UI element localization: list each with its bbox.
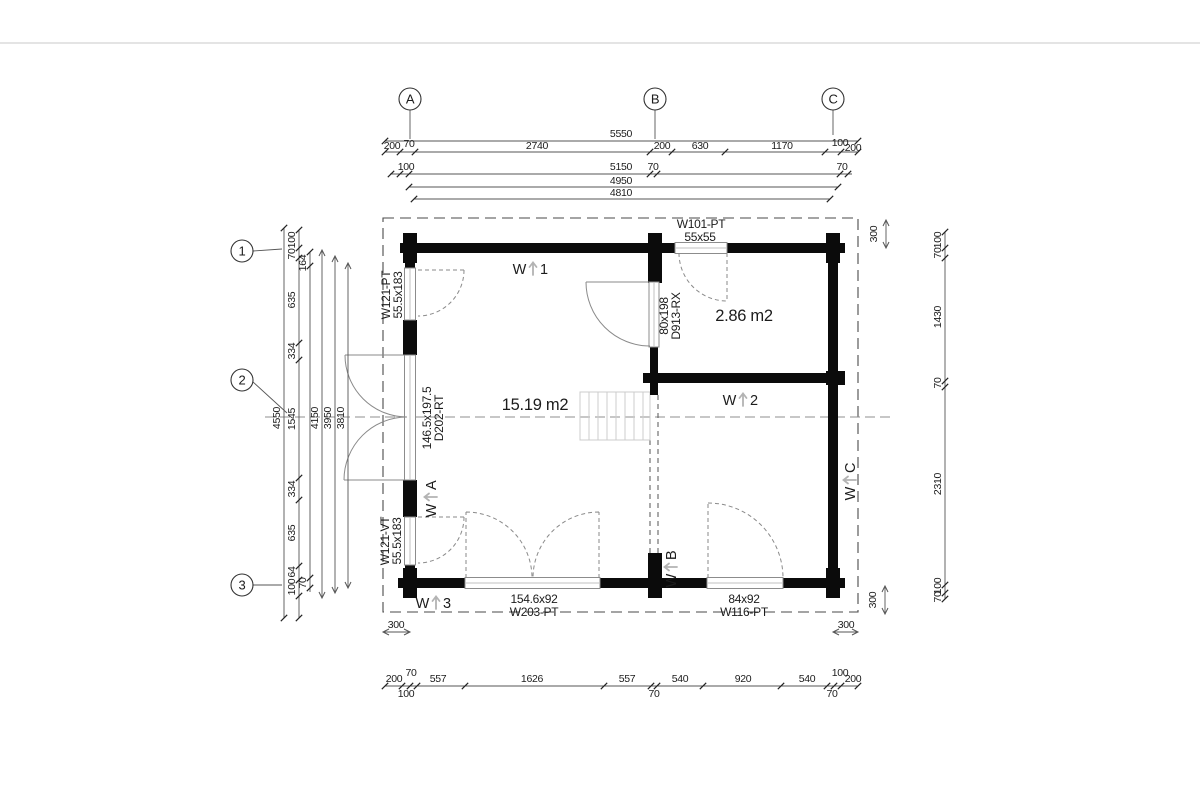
- roof-overhang-outline: [383, 218, 858, 612]
- dim-label: 100: [398, 161, 415, 173]
- dim-label: 1430: [932, 305, 944, 328]
- wall-mark-wb: WB: [664, 551, 680, 588]
- window-w121vt-size: 55.5x183: [390, 517, 404, 565]
- dim-label: 200: [386, 673, 403, 685]
- window-w203-size: 154.6x92: [511, 592, 559, 606]
- window-w121vt-swing: [418, 517, 464, 563]
- wall-mark-wc-id: C: [843, 463, 859, 473]
- wall-mark-w1-id: 1: [540, 262, 548, 278]
- wall-mark-w3: W3: [416, 596, 451, 612]
- dim-label: 100: [398, 688, 415, 700]
- window-w116-label: W116-PT: [720, 605, 769, 619]
- dim-label: 70: [932, 591, 944, 603]
- wall-mark-wc-arrow-icon: [844, 477, 857, 484]
- window-w101-label: W101-PT: [677, 217, 727, 231]
- grid-col-b-label: B: [651, 92, 659, 107]
- grid-row-3-label: 3: [239, 578, 246, 593]
- wall-left-seg: [403, 480, 417, 517]
- wall-top: [400, 243, 845, 253]
- door-d913-label: D913-RX: [669, 292, 683, 340]
- window-w101-swing: [679, 253, 727, 301]
- dim-label: 334: [286, 342, 298, 359]
- floor-plan-drawing: 5550200702740200630117010020010051507070…: [0, 0, 1200, 800]
- dim-label: 100: [932, 231, 944, 248]
- wall-left-seg: [403, 320, 417, 355]
- dim-label: 4550: [271, 406, 283, 429]
- dim-label: 300: [838, 619, 855, 631]
- room-area-small: 2.86 m2: [715, 307, 773, 325]
- window-w121pt-swing: [418, 270, 464, 316]
- dim-label: 70: [405, 667, 417, 679]
- window-w116-size: 84x92: [728, 592, 760, 606]
- wall-mark-w1-letter: W: [513, 262, 527, 278]
- dim-label: 100: [286, 231, 298, 248]
- wall-mark-wb-id: B: [664, 551, 680, 560]
- door-d913-swing: [586, 282, 650, 346]
- wall-mark-w1-arrow-icon: [530, 263, 537, 276]
- dim-label: 1626: [521, 673, 544, 685]
- dim-label: 1545: [286, 407, 298, 430]
- wall-right: [828, 243, 838, 588]
- wall-interior-v: [650, 347, 658, 395]
- openings: [405, 243, 784, 589]
- grid-row-2-label: 2: [239, 373, 246, 388]
- dim-label: 557: [619, 673, 636, 685]
- wall-mark-wb-letter: W: [664, 573, 680, 587]
- dim-label: 2740: [526, 140, 549, 152]
- log-cross: [826, 233, 840, 263]
- wall-mark-w2: W2: [723, 393, 758, 409]
- window-w121pt-size: 55.5x183: [391, 271, 405, 319]
- wall-mark-w2-arrow-icon: [740, 394, 747, 407]
- dim-label: 2310: [932, 472, 944, 495]
- window-w116-swing: [708, 503, 783, 578]
- wall-mark-w3-id: 3: [443, 596, 451, 612]
- staircase: [580, 392, 650, 440]
- dim-label: 200: [654, 140, 671, 152]
- window-w203-swing-right: [533, 512, 599, 578]
- wall-mark-w3-arrow-icon: [433, 597, 440, 610]
- window-w101-size: 55x55: [684, 230, 716, 244]
- dim-label: 4810: [610, 187, 633, 199]
- dim-label: 540: [672, 673, 689, 685]
- hidden-wall-dashed: [650, 395, 658, 578]
- wall-interior-h: [643, 373, 840, 383]
- door-d202-swing-bottom: [344, 417, 407, 480]
- dim-label: 70: [826, 688, 838, 700]
- dim-label: 635: [286, 291, 298, 308]
- grid-bubble-layer: ABC123: [231, 88, 844, 596]
- log-cross: [648, 553, 662, 598]
- dim-label: 300: [867, 591, 879, 608]
- dim-label: 5550: [610, 128, 633, 140]
- walls: [398, 233, 845, 598]
- wall-mark-w2-letter: W: [723, 393, 737, 409]
- wall-mark-wa-letter: W: [424, 503, 440, 517]
- dim-label: 3950: [322, 406, 334, 429]
- dim-label: 920: [735, 673, 752, 685]
- window-w203-label: W203-PT: [510, 605, 560, 619]
- door-d202-label: D202-RT: [432, 394, 446, 441]
- door-d202-swing-top: [345, 355, 407, 417]
- dim-label: 70: [648, 688, 660, 700]
- dim-label: 300: [868, 225, 880, 242]
- wall-mark-wb-arrow-icon: [665, 564, 678, 571]
- dim-label: 334: [286, 480, 298, 497]
- grid-row-2-leader: [253, 382, 287, 413]
- dim-label: 70: [403, 138, 415, 150]
- window-w203-swing-left: [466, 512, 532, 578]
- dim-label: 70: [932, 247, 944, 259]
- grid-col-c-label: C: [828, 92, 837, 107]
- wall-mark-wa-id: A: [424, 480, 440, 490]
- dim-label: 200: [845, 673, 862, 685]
- log-cross: [826, 568, 840, 598]
- text-label-layer: 15.19 m22.86 m2W101-PT55x55W121-PT55.5x1…: [378, 217, 859, 619]
- grid-col-a-label: A: [406, 92, 415, 107]
- floor-plan-page: 5550200702740200630117010020010051507070…: [0, 0, 1200, 800]
- dim-label: 70: [647, 161, 659, 173]
- dim-label: 70: [932, 377, 944, 389]
- wall-mark-wc-letter: W: [843, 486, 859, 500]
- wall-mark-wa-arrow-icon: [425, 494, 438, 501]
- log-cross: [403, 233, 417, 263]
- dim-label: 64: [286, 566, 298, 578]
- wall-mark-wc: WC: [843, 463, 859, 501]
- wall-mark-w2-id: 2: [750, 393, 758, 409]
- dim-label: 4150: [309, 406, 321, 429]
- grid-row-1-label: 1: [239, 244, 246, 259]
- dimension-layer: 5550200702740200630117010020010051507070…: [271, 128, 948, 700]
- dim-label: 630: [692, 140, 709, 152]
- dim-label: 5150: [610, 161, 633, 173]
- dim-label: 4950: [610, 175, 633, 187]
- dim-label: 300: [388, 619, 405, 631]
- dim-label: 200: [384, 140, 401, 152]
- dim-label: 557: [430, 673, 447, 685]
- dim-label: 200: [845, 142, 862, 154]
- wall-mark-w3-letter: W: [416, 596, 430, 612]
- dim-label: 1170: [771, 140, 793, 152]
- grid-row-1-leader: [253, 249, 282, 251]
- dim-label: 70: [297, 577, 309, 589]
- dim-label: 164: [297, 254, 309, 271]
- wall-mark-w1: W1: [513, 262, 548, 278]
- wall-mark-wa: WA: [424, 480, 440, 517]
- log-cross: [826, 371, 845, 385]
- dim-label: 3810: [335, 406, 347, 429]
- log-cross: [403, 568, 417, 598]
- log-cross: [648, 233, 662, 283]
- room-area-main: 15.19 m2: [502, 396, 569, 414]
- dim-label: 635: [286, 524, 298, 541]
- dim-label: 70: [836, 161, 848, 173]
- dim-label: 540: [799, 673, 816, 685]
